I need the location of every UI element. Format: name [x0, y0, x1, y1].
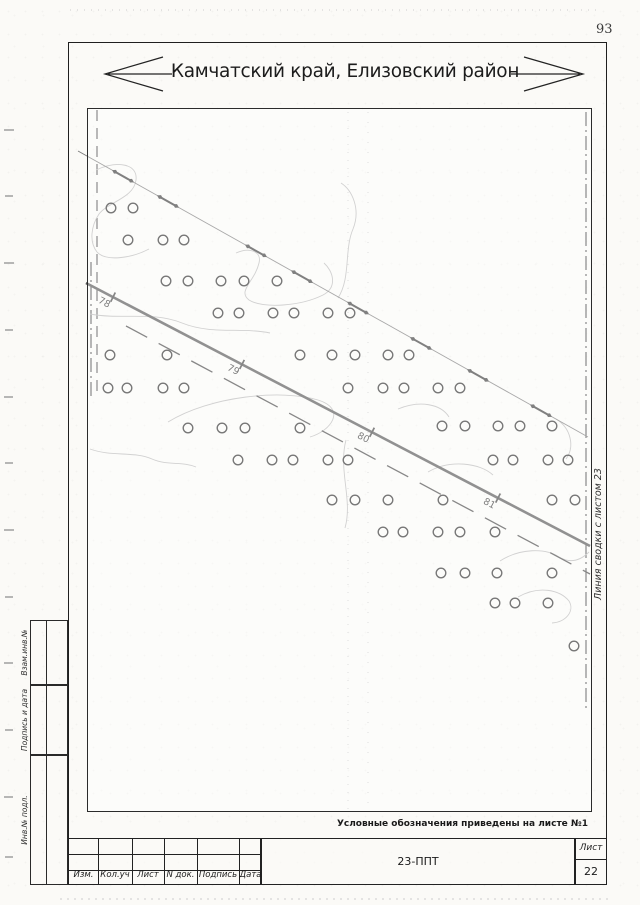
region-title: Камчатский край, Елизовский район — [168, 61, 522, 82]
legend-note: Условные обозначения приведены на листе … — [250, 819, 588, 829]
col-label-list: Лист — [132, 870, 164, 883]
title-block-revision-table: Изм. Кол.уч Лист N док. Подпись Дата — [68, 838, 261, 885]
grid-line — [576, 859, 606, 860]
stamp-box-vzam: Взам.инв.№ — [30, 620, 68, 685]
stamp-divider — [46, 756, 47, 884]
stamp-divider — [46, 686, 47, 754]
stamp-label-inv: Инв.№ подл. — [20, 757, 33, 883]
grid-line — [69, 854, 260, 855]
stamp-box-podpis: Подпись и дата — [30, 685, 68, 755]
col-label-koluch: Кол.уч — [98, 870, 132, 883]
stamp-label-vzam: Взам.инв.№ — [20, 622, 33, 683]
sheet-number: 22 — [576, 865, 606, 878]
col-label-podpis: Подпись — [197, 870, 239, 883]
stamp-label-podpis: Подпись и дата — [20, 687, 33, 753]
page-number: 93 — [596, 22, 613, 37]
document-code: 23-ППТ — [262, 855, 574, 868]
title-block-sheet-cell: Лист 22 — [575, 838, 607, 885]
stamp-box-inv: Инв.№ подл. — [30, 755, 68, 885]
col-label-ndok: N док. — [164, 870, 197, 883]
map-area — [87, 108, 592, 812]
col-label-data: Дата — [239, 870, 262, 883]
match-line-label: Линия сводки с листом 23 — [593, 428, 606, 640]
stamp-divider — [46, 621, 47, 684]
title-block-doc-cell: 23-ППТ — [261, 838, 575, 885]
col-label-izm: Изм. — [69, 870, 98, 883]
binding-marks — [4, 130, 14, 857]
drawing-sheet: 78798081 93 Камчатский край, Елизовский … — [0, 0, 640, 905]
sheet-label: Лист — [576, 843, 606, 853]
